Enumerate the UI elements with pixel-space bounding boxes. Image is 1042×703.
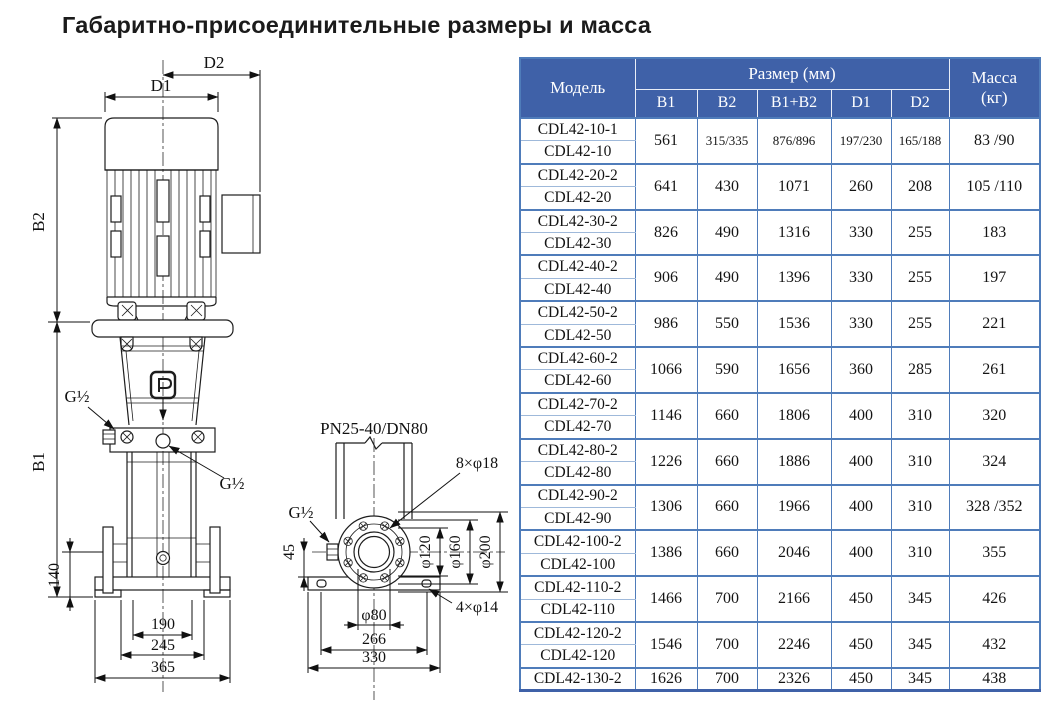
dim-b2-label: B2 (29, 212, 48, 232)
d1-cell: 400 (831, 530, 891, 576)
model-cell: CDL42-90-2 (520, 485, 635, 508)
dim-45-label: 45 (281, 544, 298, 560)
b1b2-cell: 1966 (757, 485, 831, 531)
dimensions-table: Модель Размер (мм) Масса (кг) B1 B2 B1+B… (519, 57, 1041, 692)
d2-cell: 345 (891, 576, 949, 622)
b1b2-cell: 2326 (757, 668, 831, 691)
b1-cell: 1466 (635, 576, 697, 622)
b2-cell: 490 (697, 210, 757, 256)
model-cell: CDL42-40 (520, 278, 635, 301)
mass-cell: 221 (949, 301, 1040, 347)
b1-cell: 1226 (635, 439, 697, 485)
table-row: CDL42-80-212266601886400310324 (520, 439, 1040, 462)
table-row: CDL42-120-215467002246450345432 (520, 622, 1040, 645)
b2-cell: 660 (697, 485, 757, 531)
pump-front-view: D1 D2 B2 B1 G½ G½ 140 (29, 53, 260, 692)
d2-cell: 255 (891, 210, 949, 256)
dim-phi200-label: φ200 (477, 535, 494, 568)
d1-cell: 330 (831, 255, 891, 301)
d1-cell: 450 (831, 668, 891, 691)
model-cell: CDL42-130-2 (520, 668, 635, 691)
d2-cell: 285 (891, 347, 949, 393)
dim-b1-label: B1 (29, 452, 48, 472)
table-row: CDL42-50-29865501536330255221 (520, 301, 1040, 324)
top-port (156, 434, 170, 448)
header-b2: B2 (697, 89, 757, 118)
model-cell: CDL42-20-2 (520, 164, 635, 187)
port-g-half-side-label: G½ (288, 503, 313, 522)
table-row: CDL42-90-213066601966400310328 /352 (520, 485, 1040, 508)
d1-cell: 330 (831, 301, 891, 347)
b1b2-cell: 2046 (757, 530, 831, 576)
mass-cell: 438 (949, 668, 1040, 691)
b1b2-cell: 876/896 (757, 118, 831, 164)
table-row: CDL42-60-210665901656360285261 (520, 347, 1040, 370)
pump-dimension-drawing: D1 D2 B2 B1 G½ G½ 140 (0, 0, 520, 703)
flange-spec-label: PN25-40/DN80 (320, 419, 428, 438)
dim-d1-label: D1 (151, 76, 172, 95)
dim-245-label: 245 (151, 637, 175, 654)
dim-140-label: 140 (46, 563, 63, 587)
table-row: CDL42-70-211466601806400310320 (520, 393, 1040, 416)
bolt-holes-8-label: 8×φ18 (456, 455, 498, 472)
mass-cell: 426 (949, 576, 1040, 622)
dim-phi120-label: φ120 (417, 535, 434, 568)
b2-cell: 590 (697, 347, 757, 393)
d2-cell: 310 (891, 393, 949, 439)
d1-cell: 330 (831, 210, 891, 256)
bolt-holes-4-label: 4×φ14 (456, 599, 498, 616)
d2-cell: 310 (891, 485, 949, 531)
terminal-box (222, 195, 260, 253)
b1b2-cell: 1071 (757, 164, 831, 210)
d2-cell: 255 (891, 301, 949, 347)
table-row: CDL42-10-1561315/335876/896197/230165/18… (520, 118, 1040, 141)
model-cell: CDL42-70 (520, 416, 635, 439)
dim-phi160-label: φ160 (447, 535, 464, 568)
b1-cell: 1146 (635, 393, 697, 439)
b1-cell: 826 (635, 210, 697, 256)
model-cell: CDL42-110-2 (520, 576, 635, 599)
header-model: Модель (520, 58, 635, 118)
b1b2-cell: 2166 (757, 576, 831, 622)
b2-cell: 700 (697, 576, 757, 622)
d2-cell: 310 (891, 530, 949, 576)
model-cell: CDL42-100 (520, 553, 635, 576)
port-g-half-center-label: G½ (219, 474, 244, 493)
b1b2-cell: 1806 (757, 393, 831, 439)
dim-phi80-label: φ80 (361, 607, 386, 624)
b1-cell: 641 (635, 164, 697, 210)
table-row: CDL42-130-216267002326450345438 (520, 668, 1040, 691)
dim-190-label: 190 (151, 616, 175, 633)
b2-cell: 660 (697, 530, 757, 576)
mass-cell: 432 (949, 622, 1040, 668)
b2-cell: 490 (697, 255, 757, 301)
header-d1: D1 (831, 89, 891, 118)
model-cell: CDL42-50-2 (520, 301, 635, 324)
header-mass-line2: (кг) (950, 88, 1040, 108)
mass-cell: 355 (949, 530, 1040, 576)
table-body: CDL42-10-1561315/335876/896197/230165/18… (520, 118, 1040, 691)
mass-cell: 83 /90 (949, 118, 1040, 164)
table-row: CDL42-20-26414301071260208105 /110 (520, 164, 1040, 187)
model-cell: CDL42-10-1 (520, 118, 635, 141)
header-b1: B1 (635, 89, 697, 118)
b1-cell: 1626 (635, 668, 697, 691)
b1-cell: 1306 (635, 485, 697, 531)
dim-266-label: 266 (362, 631, 386, 648)
b1b2-cell: 1886 (757, 439, 831, 485)
dimensions-table-wrap: Модель Размер (мм) Масса (кг) B1 B2 B1+B… (519, 57, 1041, 692)
d1-cell: 197/230 (831, 118, 891, 164)
d2-cell: 165/188 (891, 118, 949, 164)
b1-cell: 1066 (635, 347, 697, 393)
table-row: CDL42-40-29064901396330255197 (520, 255, 1040, 278)
side-port (103, 430, 115, 444)
model-cell: CDL42-100-2 (520, 530, 635, 553)
model-cell: CDL42-80-2 (520, 439, 635, 462)
d2-cell: 208 (891, 164, 949, 210)
model-cell: CDL42-80 (520, 462, 635, 485)
b1-cell: 1386 (635, 530, 697, 576)
table-row: CDL42-30-28264901316330255183 (520, 210, 1040, 233)
b2-cell: 700 (697, 668, 757, 691)
model-cell: CDL42-60-2 (520, 347, 635, 370)
d1-cell: 450 (831, 622, 891, 668)
b1-cell: 561 (635, 118, 697, 164)
pump-flange-view: PN25-40/DN80 G (281, 419, 508, 700)
mass-cell: 261 (949, 347, 1040, 393)
header-d2: D2 (891, 89, 949, 118)
model-cell: CDL42-40-2 (520, 255, 635, 278)
mass-cell: 324 (949, 439, 1040, 485)
dim-330-label: 330 (362, 649, 386, 666)
port-g-half-left-label: G½ (64, 387, 89, 406)
suction-flange (103, 527, 113, 593)
d1-cell: 400 (831, 439, 891, 485)
model-cell: CDL42-90 (520, 507, 635, 530)
b2-cell: 660 (697, 393, 757, 439)
header-size-group: Размер (мм) (635, 58, 949, 89)
d2-cell: 345 (891, 622, 949, 668)
b1b2-cell: 1536 (757, 301, 831, 347)
b1b2-cell: 1656 (757, 347, 831, 393)
b1-cell: 906 (635, 255, 697, 301)
header-b1b2: B1+B2 (757, 89, 831, 118)
d2-cell: 255 (891, 255, 949, 301)
dim-d2-label: D2 (204, 53, 225, 72)
b1-cell: 986 (635, 301, 697, 347)
model-cell: CDL42-10 (520, 141, 635, 164)
b2-cell: 660 (697, 439, 757, 485)
model-cell: CDL42-110 (520, 599, 635, 622)
b2-cell: 430 (697, 164, 757, 210)
table-header: Модель Размер (мм) Масса (кг) B1 B2 B1+B… (520, 58, 1040, 118)
b1b2-cell: 1396 (757, 255, 831, 301)
b1b2-cell: 1316 (757, 210, 831, 256)
d1-cell: 450 (831, 576, 891, 622)
table-row: CDL42-110-214667002166450345426 (520, 576, 1040, 599)
mass-cell: 183 (949, 210, 1040, 256)
d1-cell: 400 (831, 393, 891, 439)
d1-cell: 260 (831, 164, 891, 210)
model-cell: CDL42-60 (520, 370, 635, 393)
discharge-flange (210, 527, 220, 593)
model-cell: CDL42-20 (520, 187, 635, 210)
mass-cell: 328 /352 (949, 485, 1040, 531)
b2-cell: 315/335 (697, 118, 757, 164)
d2-cell: 345 (891, 668, 949, 691)
mass-cell: 197 (949, 255, 1040, 301)
header-mass-line1: Масса (950, 68, 1040, 88)
dim-365-label: 365 (151, 659, 175, 676)
model-cell: CDL42-50 (520, 324, 635, 347)
header-mass: Масса (кг) (949, 58, 1040, 118)
d2-cell: 310 (891, 439, 949, 485)
model-cell: CDL42-120 (520, 645, 635, 668)
flange-outer (338, 516, 410, 588)
d1-cell: 400 (831, 485, 891, 531)
model-cell: CDL42-120-2 (520, 622, 635, 645)
d1-cell: 360 (831, 347, 891, 393)
mass-cell: 320 (949, 393, 1040, 439)
b2-cell: 550 (697, 301, 757, 347)
model-cell: CDL42-70-2 (520, 393, 635, 416)
b2-cell: 700 (697, 622, 757, 668)
mass-cell: 105 /110 (949, 164, 1040, 210)
model-cell: CDL42-30-2 (520, 210, 635, 233)
b1b2-cell: 2246 (757, 622, 831, 668)
model-cell: CDL42-30 (520, 233, 635, 256)
page: Габаритно-присоединительные размеры и ма… (0, 0, 1042, 703)
b1-cell: 1546 (635, 622, 697, 668)
table-row: CDL42-100-213866602046400310355 (520, 530, 1040, 553)
